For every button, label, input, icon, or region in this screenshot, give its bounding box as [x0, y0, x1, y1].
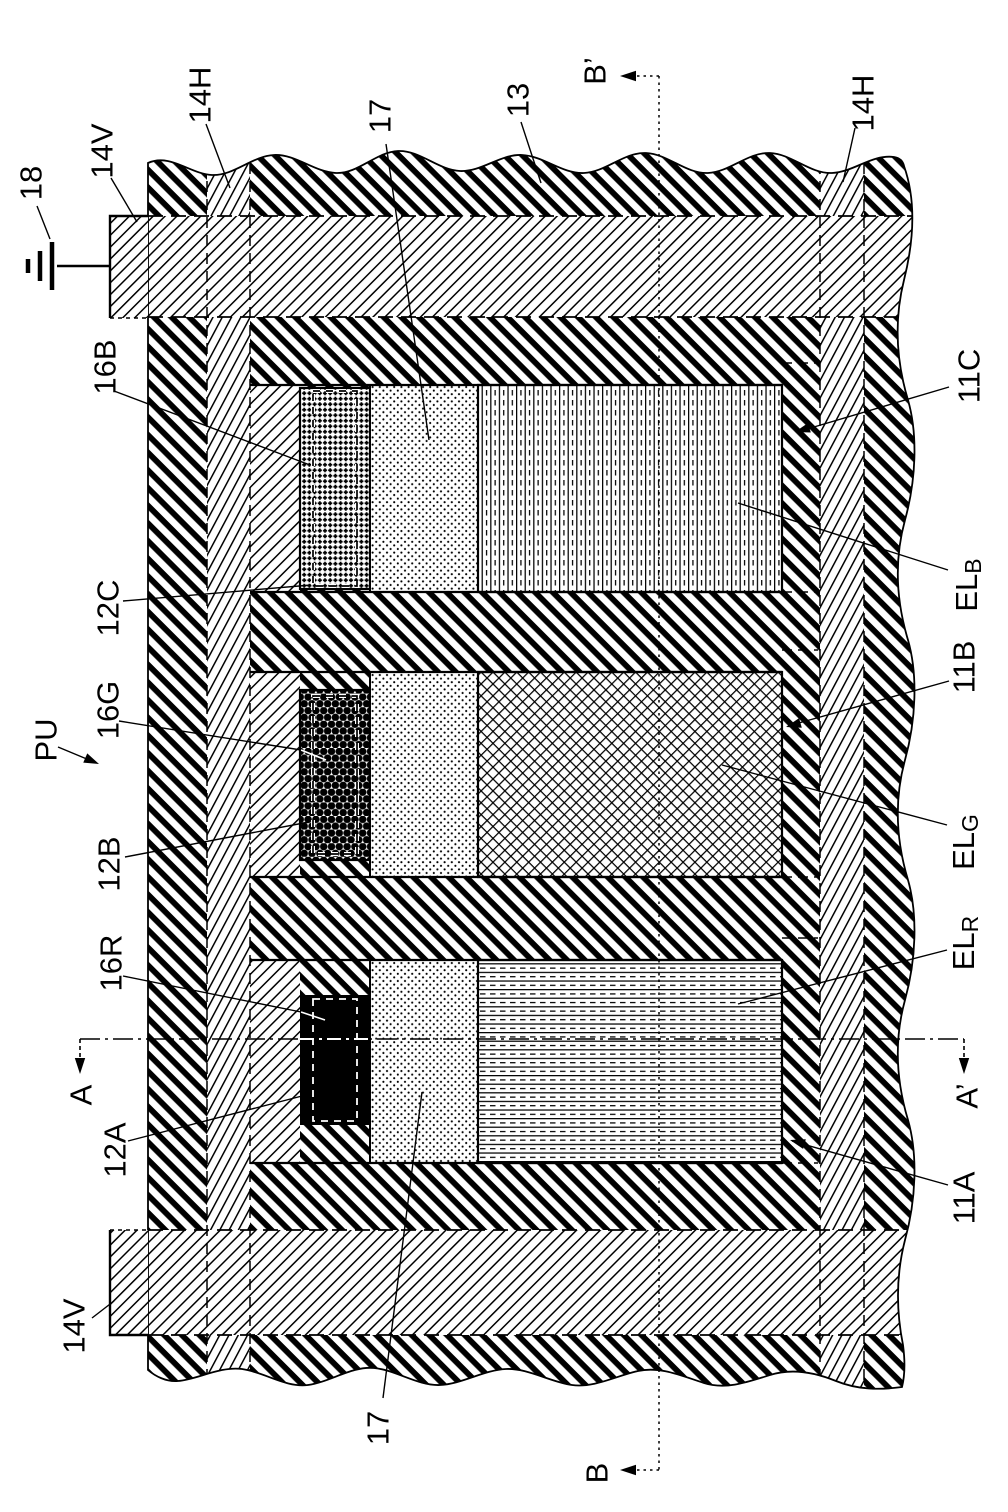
contact-16G — [300, 690, 370, 860]
organic-layer-17-green — [370, 672, 478, 877]
power-band-14V-top — [148, 216, 918, 317]
patent-figure-page: 18 14V 14H 17 13 B’ 14H PU 16B 12C 16G 1… — [0, 0, 1008, 1512]
contact-16B — [300, 388, 370, 589]
label-EL-R-main: EL — [946, 932, 981, 970]
pixel-layout-figure: 18 14V 14H 17 13 B’ 14H PU 16B 12C 16G 1… — [0, 0, 1008, 1512]
label-11C: 11C — [952, 349, 987, 404]
label-12C: 12C — [91, 580, 126, 637]
label-14H-left: 14H — [183, 67, 218, 124]
power-column-14H-right — [820, 140, 864, 1400]
label-EL-R-sub: R — [957, 916, 983, 933]
label-EL-B: ELB — [949, 558, 987, 611]
power-band-14V-bottom — [148, 1230, 918, 1335]
label-12B: 12B — [92, 836, 127, 891]
label-EL-G-main: EL — [946, 832, 981, 870]
el-layer-red — [478, 960, 782, 1163]
arrow-a-prime-icon — [959, 1058, 969, 1074]
arrow-a-icon — [75, 1058, 85, 1074]
power-column-14H-left — [207, 140, 250, 1400]
label-18: 18 — [14, 166, 49, 200]
label-B: B — [580, 1463, 615, 1484]
label-EL-B-sub: B — [960, 558, 986, 573]
label-EL-G: ELG — [946, 814, 984, 870]
leader-18 — [37, 206, 50, 239]
label-PU: PU — [29, 718, 64, 761]
label-B-prime: B’ — [578, 57, 613, 85]
label-A: A — [64, 1084, 99, 1105]
label-EL-G-sub: G — [957, 814, 983, 832]
label-11A: 11A — [947, 1171, 982, 1224]
arrow-b-icon — [620, 1465, 636, 1475]
label-14V-bottom: 14V — [57, 1298, 92, 1353]
label-13: 13 — [501, 83, 536, 117]
ground-icon — [28, 242, 110, 290]
tab-14V-bottom — [110, 1230, 148, 1335]
label-14V-top: 14V — [85, 123, 120, 178]
row-strip-red — [250, 960, 300, 1163]
label-14H-right: 14H — [846, 75, 881, 132]
label-11B: 11B — [947, 641, 982, 694]
label-17-bottom: 17 — [361, 1411, 396, 1445]
arrow-b-prime-icon — [620, 71, 636, 81]
label-EL-B-main: EL — [949, 574, 984, 612]
el-layer-blue — [478, 385, 782, 592]
label-16B: 16B — [88, 339, 123, 394]
label-16G: 16G — [91, 681, 126, 740]
el-layer-green — [478, 672, 782, 877]
row-strip-green — [250, 672, 300, 877]
figure-body — [148, 140, 918, 1400]
organic-layer-17-red — [370, 960, 478, 1163]
label-16R: 16R — [94, 935, 129, 992]
tab-14V-top — [110, 216, 148, 318]
label-17-top: 17 — [363, 99, 398, 133]
label-EL-R: ELR — [946, 916, 984, 971]
row-strip-blue — [250, 385, 300, 592]
organic-layer-17-blue — [370, 385, 478, 592]
label-A-prime: A’ — [950, 1083, 985, 1108]
arrow-PU-icon — [83, 753, 101, 768]
label-12A: 12A — [98, 1122, 133, 1177]
